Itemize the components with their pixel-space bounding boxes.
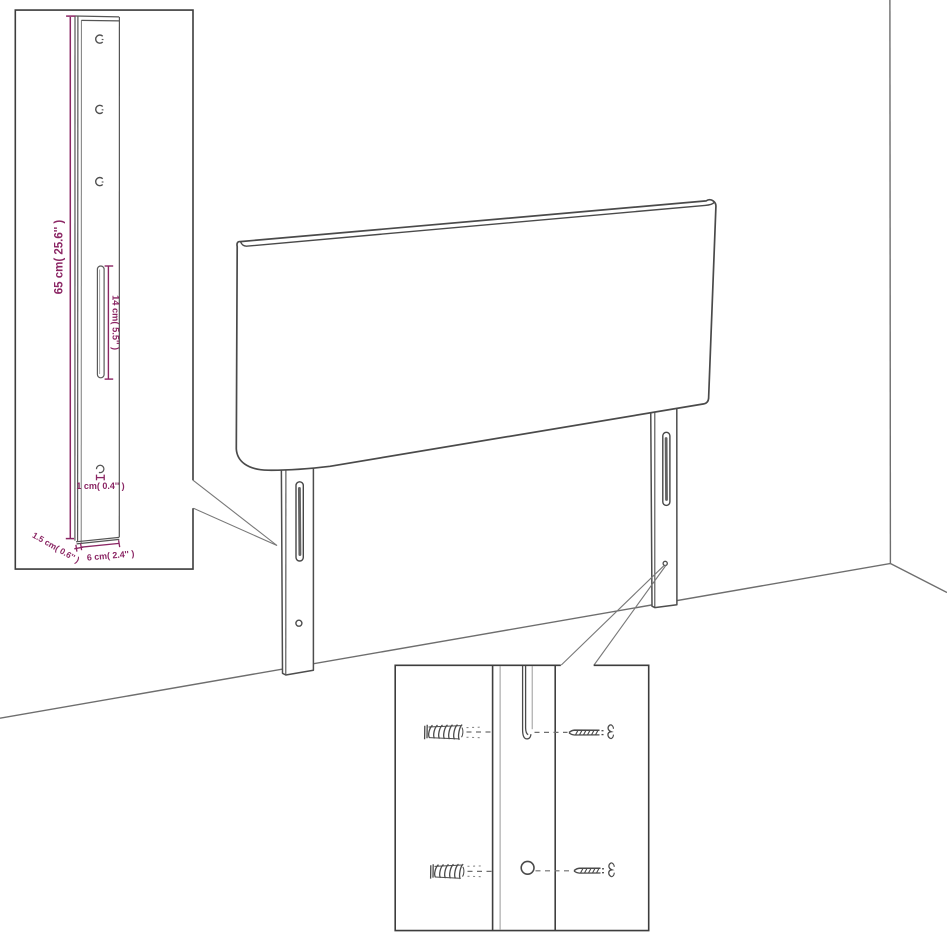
svg-text:14 cm( 5.5'' ): 14 cm( 5.5'' ): [111, 295, 121, 350]
svg-text:1 cm( 0.4'' ): 1 cm( 0.4'' ): [76, 481, 124, 491]
svg-text:65 cm( 25.6'' ): 65 cm( 25.6'' ): [53, 220, 65, 295]
